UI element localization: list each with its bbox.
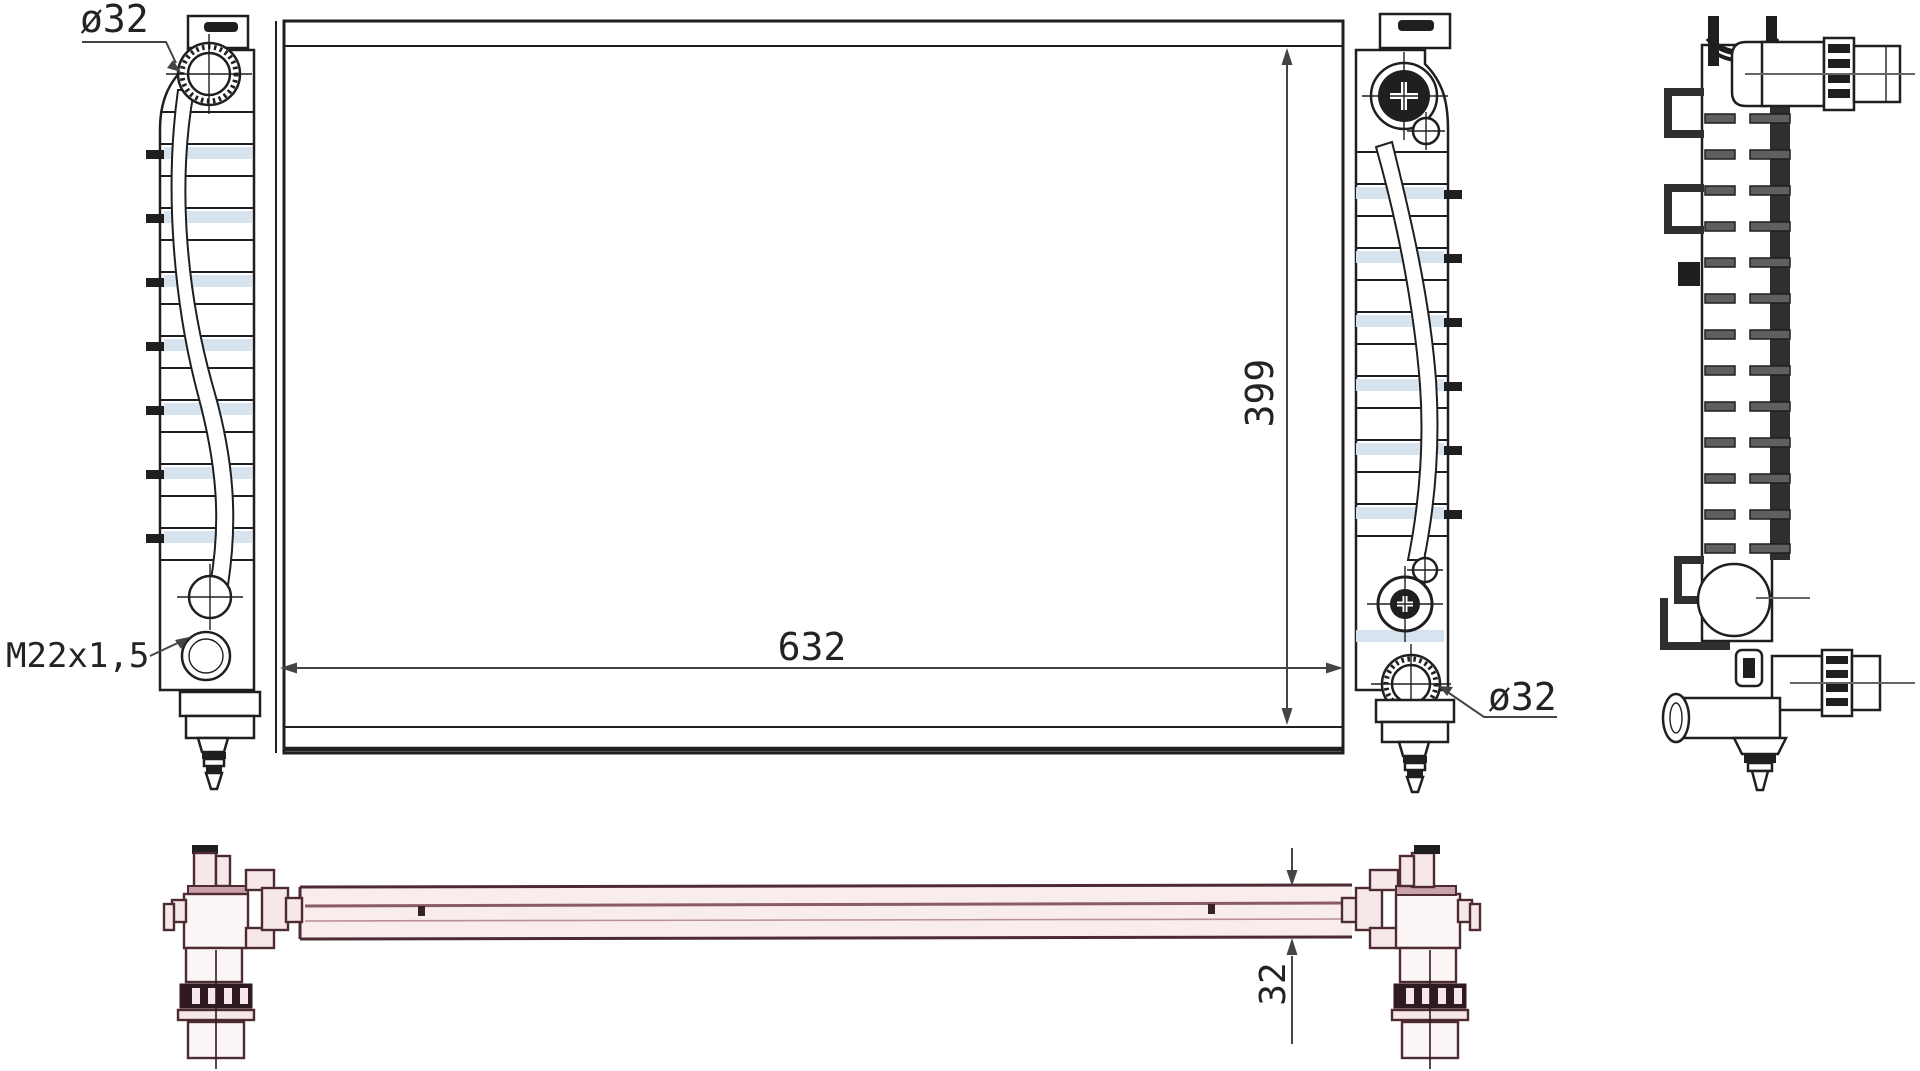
side-lower-port <box>1772 650 1915 716</box>
right-drain-plug <box>1399 742 1429 792</box>
height-dimension-label: 399 <box>1238 359 1282 428</box>
label-outlet-diameter: ø32 <box>1439 675 1557 719</box>
label-inlet-diameter: ø32 <box>80 0 181 72</box>
front-view-right-tank <box>1356 14 1462 792</box>
bottom-left-connector <box>164 845 302 1069</box>
front-view-left-tank <box>146 16 260 789</box>
radiator-technical-drawing: ALVADI <box>0 0 1920 1071</box>
dimension-32: 32 <box>1253 848 1298 1044</box>
drawing-canvas: ALVADI <box>0 0 1920 1071</box>
side-view <box>1663 16 1915 790</box>
drain-thread-text: M22x1,5 <box>6 636 149 676</box>
outlet-diameter-text: ø32 <box>1488 675 1557 719</box>
width-dimension-label: 632 <box>778 625 847 669</box>
m22-drain-port <box>182 632 230 680</box>
left-drain-plug <box>198 738 228 789</box>
side-top-port <box>1732 38 1915 110</box>
bottom-right-connector <box>1342 845 1480 1069</box>
inlet-diameter-text: ø32 <box>80 0 149 41</box>
tube-depth-label: 32 <box>1253 962 1294 1005</box>
side-drain-plug <box>1734 738 1786 790</box>
bottom-view: 32 <box>164 845 1480 1069</box>
